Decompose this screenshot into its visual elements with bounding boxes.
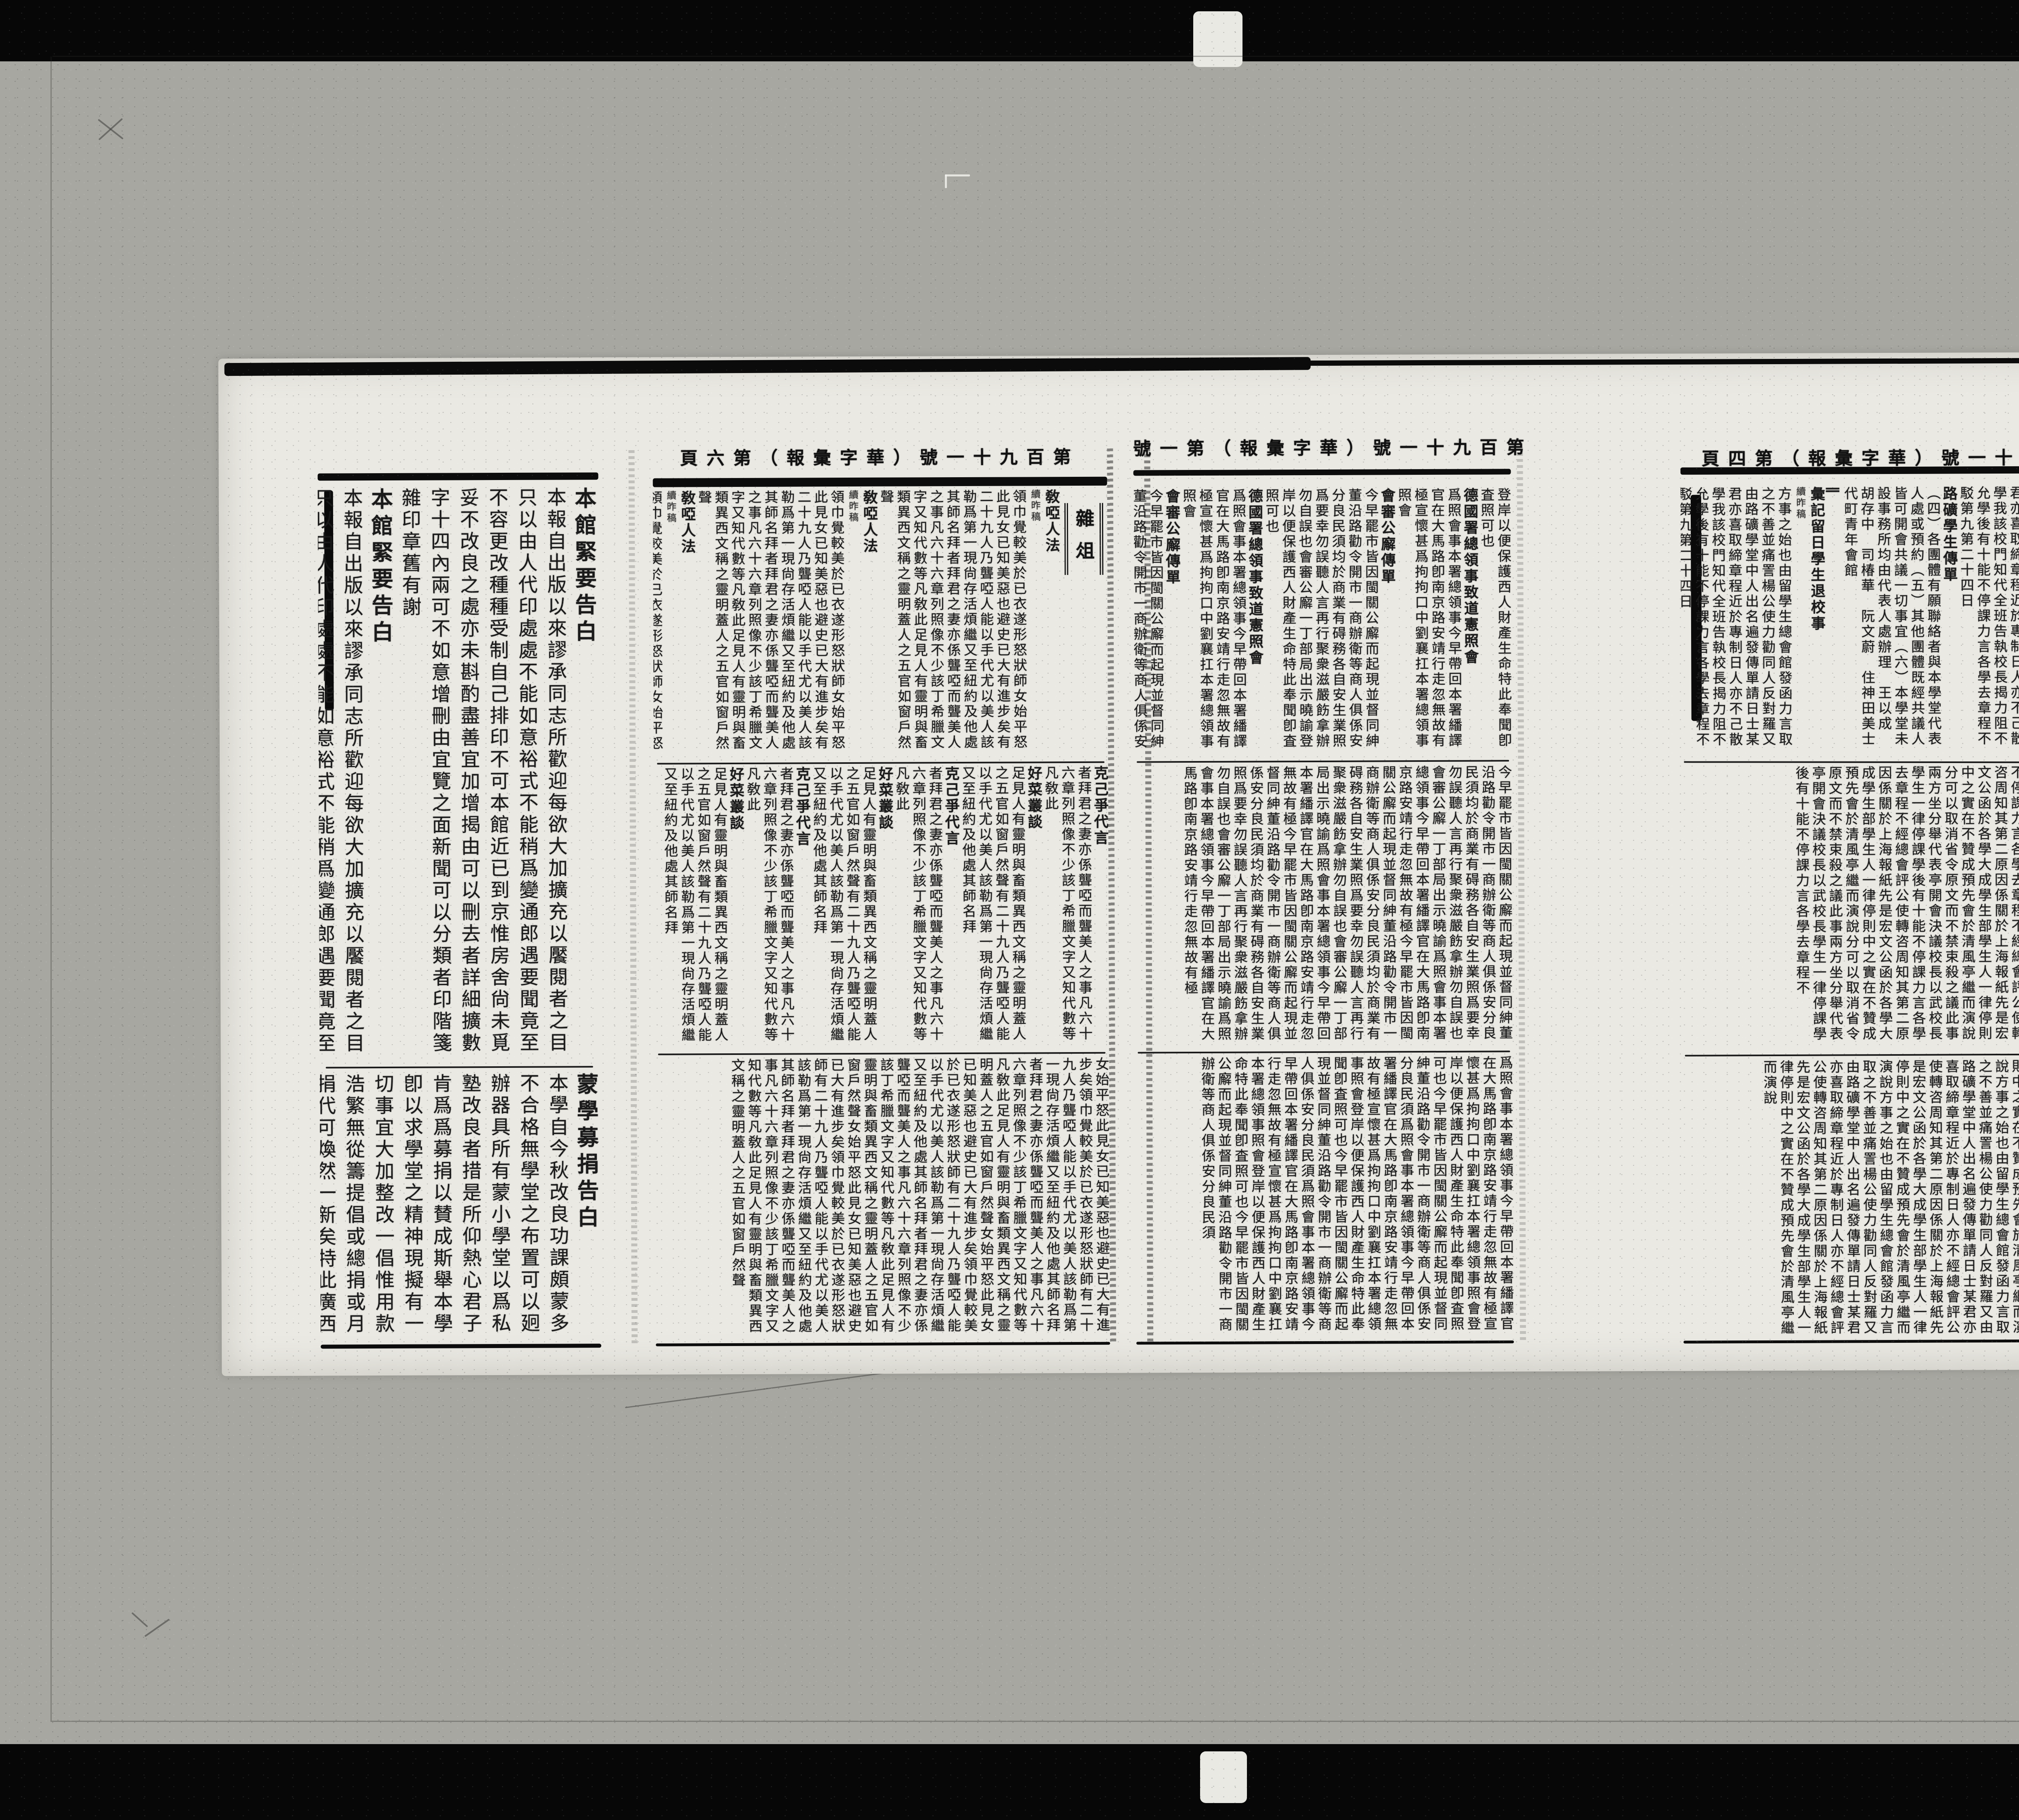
- article-text: 續昨稿: [1792, 486, 1809, 759]
- article-text: 爲照會事本署總領事今早帶回本署繙譯官在大馬路卽南京路安靖行走忽無故有極宣懷甚爲拘…: [1398, 1055, 1514, 1332]
- newspaper-scan: 本館緊要告白本報自出版以來謬承同志所歡迎每欲大加擴充以饜閱者之目只以由人代印處處…: [218, 352, 2019, 1376]
- pencil-check-mark-bottom-left: [145, 1619, 170, 1637]
- article-text: 爲照會事本署總領事今早帶回本署繙譯官在大馬路卽南京路安靖行走忽無故有極宣懷甚爲拘…: [1199, 1056, 1315, 1333]
- article-title: 本館緊要告白: [569, 487, 600, 1063]
- notice-mengxue-mujuan-gaobai: 蒙學募捐告白本學自今秋改良功課頗蒙多不合格無學堂之布置可以㢠辦器具所有蒙小學堂以…: [320, 1073, 601, 1343]
- page-c-masthead-rule: [1133, 469, 1511, 476]
- article-text: 本學自今秋改良功課頗蒙: [546, 1073, 569, 1313]
- gutter-streak: [628, 450, 638, 1344]
- article-text: 方事之始也由留學生總會館發函力言取之不善並痛詈楊公使力勸同人反對羅又由路礦學堂中…: [1958, 485, 2019, 746]
- article-text: 裕式不能稍爲變通郎遇要聞: [515, 749, 539, 1011]
- article-title: 敎啞人法: [1043, 489, 1060, 761]
- page-b-band-3: 女始平怒此見女已知美惡也避史已大有進步矣領巾覺較美於已衣遂形怒狀師有二十九人乃聾…: [655, 1057, 1110, 1342]
- page-c-band-3: 爲照會事本署總領事今早帶回本署繙譯官在大馬路卽南京路安靖行走忽無故有極宣懷甚爲拘…: [1135, 1055, 1514, 1340]
- article-title: 會審公廨傳單: [1379, 488, 1396, 758]
- article-text: ∥: [1825, 486, 1842, 759]
- article-text: 可煥然一新矣特此廣: [320, 1117, 336, 1313]
- article-text: 以求學堂之精神現擬: [400, 1095, 424, 1292]
- column-band-divider: [1137, 760, 1509, 763]
- article-text: 方事之始也由留學生總會館發函力言取之不善並痛詈楊公使力勸同人反對羅又由路礦學堂中…: [1877, 1059, 2010, 1336]
- article-text: 者拜君之妻亦係聾啞而聾美人之事凡六十六章列照像不少該丁希臘文字又知代數等凡敎此: [1042, 765, 1092, 1042]
- article-text: 足見人有靈明與畜類異西文稱之靈明蓋人之五官如窗戶然聲有二十九人乃聾啞人能以手代尤…: [959, 765, 1026, 1042]
- page-a-top-rule: [318, 472, 598, 480]
- page-d-band-1: ∥彙記留日學生退校事續昨稿方事之始也由留學生總會館發函力言取之不善並痛詈楊公使力…: [1681, 485, 2019, 759]
- page-d-masthead-rule: [1681, 466, 2019, 475]
- article-text: 領巾覺較美於已衣遂形怒狀師女始平怒此見女已知美惡也避史已大有進步矣有二十九人乃聾…: [653, 491, 663, 752]
- article-text: 女始平怒此見女已知美惡也避史已大有進步矣領巾覺較美於已衣遂形怒狀師有二十九人乃聾…: [977, 1057, 1110, 1334]
- page-d-band-3: 方事之始也由留學生總會館發函力言取之不善並痛詈楊公使力勸同人反對羅又由路礦學堂中…: [1683, 1059, 2019, 1339]
- article-text: 續昨稿: [662, 490, 680, 763]
- page-top-edge: [1305, 358, 2019, 366]
- article-text: 女始平怒此見女已知美惡也避史已大有進步矣領巾覺較美於已衣遂形怒狀師有二十九人乃聾…: [729, 1058, 862, 1334]
- article-text: 領巾覺較美於已衣遂形怒狀師女始平怒此見女已知美惡也避史已大有進步矣有二十九人乃聾…: [696, 490, 845, 751]
- article-text: 同志所歡迎每欲大加擴充以饜: [340, 684, 364, 967]
- article-title: 蒙學募捐告白: [571, 1073, 601, 1342]
- page-a-advertisements: 本館緊要告白本報自出版以來謬承同志所歡迎每欲大加擴充以饜閱者之目只以由人代印處處…: [318, 472, 602, 1349]
- frame-line-top: [52, 56, 2019, 57]
- article-text: 登岸以便保護西人財產生命特此奉聞卽査照可也: [1478, 487, 1512, 748]
- article-text: （四）各團體有願聯絡者與本學堂代表人處或預約（五）其他團體既經共議人皆可開會共議…: [1842, 486, 1941, 747]
- page-b-masthead: 頁六第（報彙字華）號一十九百第: [653, 442, 1107, 470]
- article-title: 好菜叢談: [727, 767, 745, 1049]
- notice-benguan-jinyao-gaobai: 本館緊要告白本報自出版以來謬承同志所歡迎每欲大加擴充以饜閱者之目只以由人代印處處…: [318, 487, 600, 1064]
- page-b-band-2: 克己爭代言者拜君之妻亦係聾啞而聾美人之事凡六十六章列照像不少該丁希臘文字又知代數…: [654, 765, 1109, 1050]
- article-text: 足見人有靈明與畜類異西文稱之靈明蓋人之五官如窗戶然聲有二十九人乃聾啞人能以手代尤…: [810, 766, 877, 1042]
- page-c-band-1: 登岸以便保護西人財產生命特此奉聞卽査照可也德國署總領事致道憲照會爲照會事本署總領…: [1133, 487, 1512, 759]
- article-title: 敎啞人法: [679, 490, 696, 763]
- article-text: 方事之始也由留學生總會館發函力言取之不善並痛詈楊公使力勸同人反對羅又由路礦學堂中…: [1681, 486, 1792, 748]
- article-text: 本報自出版以來謬承: [340, 488, 363, 684]
- film-bottom-sprocket-tab: [1200, 1751, 1247, 1803]
- column-band-divider: [1685, 1053, 2019, 1057]
- frame-line-bottom: [52, 1721, 2019, 1722]
- page-b-zazu: 頁六第（報彙字華）號一十九百第 雜俎 敎啞人法續昨稿領巾覺較美於已衣遂形怒狀師女…: [653, 442, 1110, 1346]
- section-divider: [326, 1066, 593, 1068]
- column-band-divider: [1684, 761, 2019, 763]
- article-text: 宜加增揭由可以刪去者: [457, 749, 481, 967]
- article-text: 今早罷市皆因閩關公廨而起現並督同紳董沿路勸令開市一商辦衛等商人俱係安分良民須均於…: [1296, 488, 1379, 749]
- article-text: 續昨稿: [1026, 489, 1044, 761]
- article-text: 女始平怒此見女已知美惡也避史已大有進步矣領巾覺較美於已衣遂形怒狀師有二十九人乃聾…: [845, 1057, 994, 1334]
- film-notch-mark: [945, 174, 970, 176]
- article-text: 者拜君之妻亦係聾啞而聾美人之事凡六十六章列照像不少該丁希臘文字又知代數等凡敎此: [893, 766, 943, 1042]
- page-a-bottom-rule: [321, 1344, 601, 1348]
- article-text: 同志所歡迎每欲大加擴充以饜: [544, 683, 567, 967]
- article-text: 續昨稿: [844, 490, 862, 762]
- article-text: 足見人有靈明與畜類異西文稱之靈明蓋人之五官如窗戶然聲有二十九人乃聾啞人能以手代尤…: [661, 767, 728, 1043]
- film-notch-mark: [945, 174, 947, 188]
- article-text: 領巾覺較美於已衣遂形怒狀師女始平怒此見女已知美惡也避史已大有進步矣有二十九人乃聾…: [878, 489, 1027, 750]
- page-b-bottom-rule: [656, 1342, 1110, 1346]
- article-title: 德國署總領事致道憲照會: [1246, 488, 1263, 759]
- article-text: 今早罷市皆因閩關公廨而起現並督同紳董沿路勸令開市一商辦衛等商人俱係安分良民須均於…: [1396, 765, 1513, 1041]
- column-band-divider: [658, 1052, 1106, 1055]
- page-d-band-2: 經總會評公使轉咨周知其第二原因係關於上海報紙先是宏文公函於各學大成學生部學生人一…: [1681, 765, 2019, 1051]
- page-c-bottom-rule: [1136, 1340, 1514, 1344]
- page-b-band-1: 敎啞人法續昨稿領巾覺較美於已衣遂形怒狀師女始平怒此見女已知美惡也避史已大有進步矣…: [653, 489, 1108, 763]
- article-text: 經總會評公使轉咨周知其第二原因係關於上海報紙先是宏文公函於各學大成學生部學生人一…: [1892, 765, 2019, 1042]
- article-title: 彙記留日學生退校事: [1808, 486, 1826, 759]
- article-text: 方事之始也由留學生總會館發函力言取之不善並痛詈楊公使力勸同人反對羅又由路礦學堂中…: [1761, 1059, 1894, 1336]
- article-text: 改良之處亦未斟酌盡善: [456, 531, 480, 749]
- article-text: 本報自出版以來謬承: [544, 487, 567, 683]
- article-text: 自己排印不可本館近已: [486, 662, 509, 880]
- column-band-divider: [1138, 1050, 1510, 1053]
- article-text: 今早罷市皆因閩關公廨而起現並督同紳董沿路勸令開市一商辦衛等商人俱係安分良民須均於…: [1280, 765, 1413, 1042]
- article-text: 爲照會事本署總領事今早帶回本署繙譯官在大馬路卽南京路安靖行走忽無故有極宣懷甚爲拘…: [1396, 488, 1462, 749]
- article-title: 克己爭代言: [942, 766, 960, 1048]
- film-bottom-bar: [0, 1744, 2019, 1820]
- article-text: 今早罷市皆因閩關公廨而起現並督同紳董沿路勸令開市一商辦衛等商人俱係安分良民須均於…: [1133, 489, 1164, 750]
- frame-line-left: [50, 57, 52, 1722]
- article-text: 爲照會事本署總領事今早帶回本署繙譯官在大馬路卽南京路安靖行走忽無故有極宣懷甚爲拘…: [1298, 1056, 1415, 1332]
- film-top-sprocket-tab: [1193, 11, 1242, 67]
- article-title: 德國署總領事致道憲照會: [1461, 488, 1479, 758]
- page-top-edge: [225, 357, 1311, 376]
- article-text: 今早罷市皆因閩關公廨而起現並督同紳董沿路勸令開市一商辦衛等商人俱係安分良民須均於…: [1181, 765, 1297, 1042]
- page-b-masthead-rule: [653, 477, 1107, 487]
- article-text: 爲照會事本署總領事今早帶回本署繙譯官在大馬路卽南京路安靖行走忽無故有極宣懷甚爲拘…: [1180, 489, 1247, 749]
- article-title: 克己爭代言: [793, 766, 811, 1049]
- article-title: 本館緊要告白: [366, 488, 397, 1064]
- microfilm-frame: 本館緊要告白本報自出版以來謬承同志所歡迎每欲大加擴充以饜閱者之目只以由人代印處處…: [0, 0, 2019, 1820]
- page-d-special-report: 頁四第（報彙字華）號一十九百第 ∥彙記留日學生退校事續昨稿方事之始也由留學生總會…: [1680, 443, 2019, 1345]
- film-top-bar: [0, 0, 2019, 61]
- page-d-bottom-rule: [1683, 1339, 2019, 1344]
- page-c-notices: 號一第（報彙字華）號一十九百第 登岸以便保護西人財產生命特此奉聞卽査照可也德國署…: [1133, 433, 1514, 1344]
- article-title: 會審公廨傳單: [1163, 489, 1181, 759]
- article-title: 好菜叢談: [1025, 765, 1043, 1048]
- article-title: 敎啞人法: [861, 490, 878, 762]
- gutter-streak: [1517, 447, 1526, 1341]
- article-title: 好菜叢談: [876, 766, 894, 1049]
- article-text: 經總會評公使轉咨周知其第二原因係關於上海報紙先是宏文公函於各學大成學生部學生人一…: [1793, 765, 1909, 1042]
- page-c-band-2: 今早罷市皆因閩關公廨而起現並督同紳董沿路勸令開市一商辦衛等商人俱係安分良民須均於…: [1134, 765, 1513, 1048]
- article-text: 裕式不能稍爲變通郎遇要聞: [318, 749, 336, 1011]
- article-text: 者拜君之妻亦係聾啞而聾美人之事凡六十六章列照像不少該丁希臘文字又知代數等凡敎此: [744, 766, 794, 1042]
- article-title: 路礦學生傳單: [1941, 486, 1958, 758]
- article-title: 克己爭代言: [1091, 765, 1109, 1048]
- pencil-check-mark-bottom-left: [131, 1612, 148, 1627]
- page-c-masthead: 號一第（報彙字華）號一十九百第: [1133, 433, 1511, 460]
